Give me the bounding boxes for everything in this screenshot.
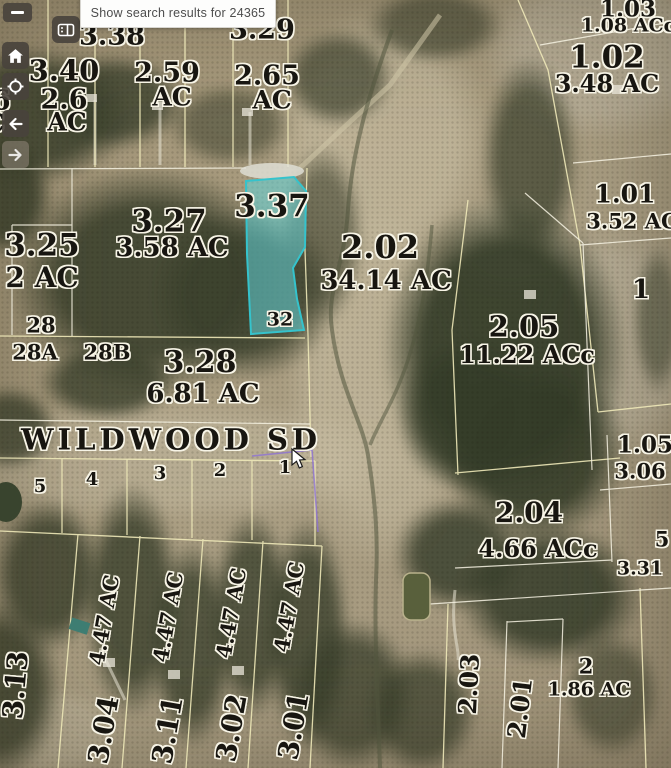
locate-icon (7, 78, 24, 95)
parcel-acreage: 3.52 AC (586, 211, 671, 232)
parcel-acreage: 2 AC (5, 264, 78, 292)
parcel-label: 28B (84, 342, 131, 363)
lot-number: 1 (279, 459, 292, 477)
house-teal-roof (69, 618, 91, 635)
parcel-acreage: 3.06 (614, 461, 665, 482)
lot-number: 2 (214, 462, 227, 480)
parcel-label: 3.40 (29, 57, 100, 86)
map-canvas[interactable]: 3.38 3.29 3.40 2.59 AC 2.65 AC 2.6 AC 2.… (0, 0, 671, 768)
search-results-tooltip[interactable]: Show search results for 24365 (80, 0, 276, 28)
parcel-acreage: 3.58 AC (115, 235, 228, 261)
parcel-acreage: 3.48 AC (555, 72, 660, 96)
road-label-wildwood-sd: WILDWOOD SD (21, 426, 321, 455)
parcel-label: 2.05 (489, 313, 560, 342)
parcel-acreage: 4.66 ACc (478, 537, 597, 561)
parcel-acreage: AC (152, 85, 191, 110)
selected-parcel-lot-number: 32 (267, 311, 293, 330)
pond-large (403, 573, 430, 620)
parcel-label: 2.02 (341, 231, 419, 263)
pond-small (0, 482, 22, 522)
home-button[interactable] (2, 42, 29, 69)
lot-number: 3 (154, 465, 167, 483)
mouse-cursor (291, 448, 307, 470)
panel-toggle-icon (56, 21, 76, 39)
back-button[interactable] (2, 110, 29, 137)
parcel-acreage: AC (252, 88, 291, 113)
parcel-label: 3.13 (0, 650, 33, 720)
zoom-out-button[interactable] (3, 3, 32, 22)
stream-path (331, 30, 392, 768)
parcel-label: 3.25 (4, 231, 80, 262)
forward-button[interactable] (2, 141, 29, 168)
lot-number: 4 (86, 471, 99, 489)
parcel-label: 28A (12, 342, 58, 363)
parcel-map-app: 3.38 3.29 3.40 2.59 AC 2.65 AC 2.6 AC 2.… (0, 0, 671, 768)
arrow-left-icon (7, 116, 24, 132)
home-icon (7, 48, 24, 64)
parcel-label: 2.04 (495, 499, 563, 527)
parcel-label: 1.05 (617, 434, 671, 457)
parcel-label: 2.01 (504, 676, 536, 739)
parcel-acreage: 3.31 (617, 560, 663, 579)
parcel-acreage: 34.14 AC (320, 268, 451, 294)
parcel-acreage: AC (47, 110, 86, 135)
arrow-right-icon (7, 147, 24, 163)
parcel-label: 2 (579, 656, 594, 677)
parcel-acreage: 11.22 ACc (459, 343, 595, 367)
parcel-acreage: 1.08 ACc (581, 17, 671, 36)
parcel-label: 2.03 (455, 653, 483, 715)
selected-parcel-label: 3.37 (234, 192, 310, 223)
parcel-label: 1.01 (595, 182, 656, 207)
parcel-acreage: 6.81 AC (146, 381, 259, 407)
parcel-acreage: 1.86 AC (548, 681, 631, 700)
parcel-label: 28 (26, 315, 55, 336)
locate-button[interactable] (2, 73, 29, 100)
parcel-label: 3.28 (163, 348, 236, 378)
legend-panel-toggle-button[interactable] (52, 16, 80, 43)
minus-icon (11, 11, 24, 14)
tooltip-text: Show search results for 24365 (91, 6, 266, 20)
parcel-label-clipped: 5 (655, 529, 670, 550)
lot-number: 5 (34, 478, 47, 496)
parcel-label: 1 (632, 277, 650, 303)
